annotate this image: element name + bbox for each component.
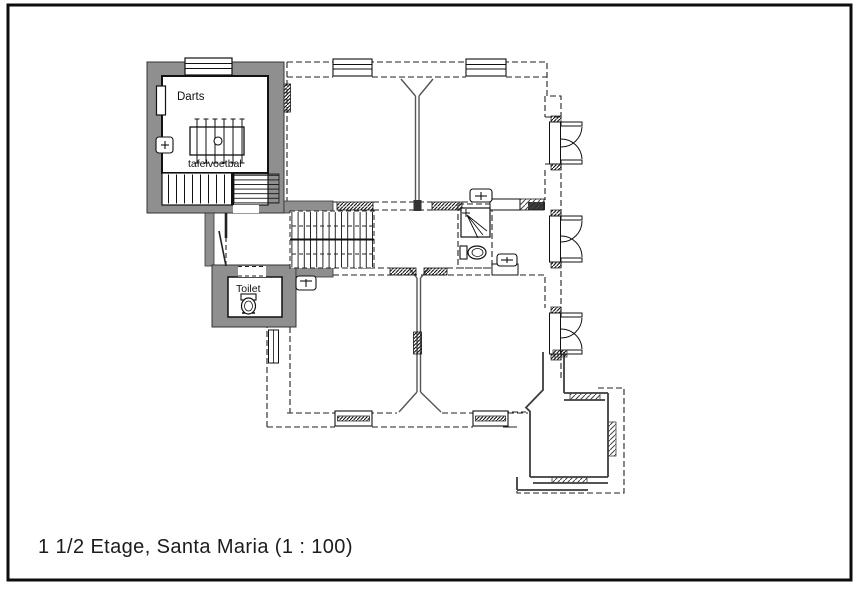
toilet-icon — [241, 294, 256, 314]
spine-wall-jamb — [414, 200, 422, 211]
stair-passage — [233, 205, 259, 213]
shower-icon — [461, 208, 490, 238]
spine-wall-opening — [414, 332, 422, 354]
sink-icon — [470, 189, 492, 202]
sink-icon — [156, 137, 173, 153]
window — [570, 393, 600, 400]
page-border — [8, 5, 851, 580]
window — [553, 350, 567, 357]
window — [473, 411, 508, 426]
left-window — [269, 330, 279, 363]
window — [157, 86, 166, 115]
bathroom — [460, 208, 490, 259]
stairs-flight — [234, 174, 279, 203]
toilet-icon — [460, 246, 486, 259]
toilet-door-opening — [238, 266, 266, 277]
window — [185, 58, 232, 75]
corridor-wall — [205, 213, 214, 266]
window — [333, 59, 372, 76]
sink-icon — [497, 254, 517, 266]
window — [608, 422, 616, 456]
window — [335, 411, 372, 426]
drawing-caption: 1 1/2 Etage, Santa Maria (1 : 100) — [38, 536, 353, 559]
stairs-flight — [166, 175, 230, 204]
stairs-main — [290, 211, 374, 268]
sink-icon — [296, 276, 316, 290]
darts-room: Darts tafelvoetbal — [156, 58, 279, 213]
floor-plan-drawing: Darts tafelvoetbal Toilet — [0, 0, 860, 592]
window — [466, 59, 506, 76]
floor-plan-page: Darts tafelvoetbal Toilet — [0, 0, 860, 592]
table-football-label: tafelvoetbal — [188, 158, 242, 170]
darts-room-label: Darts — [177, 91, 205, 103]
window — [552, 477, 587, 483]
toilet-room-label: Toilet — [236, 283, 261, 295]
